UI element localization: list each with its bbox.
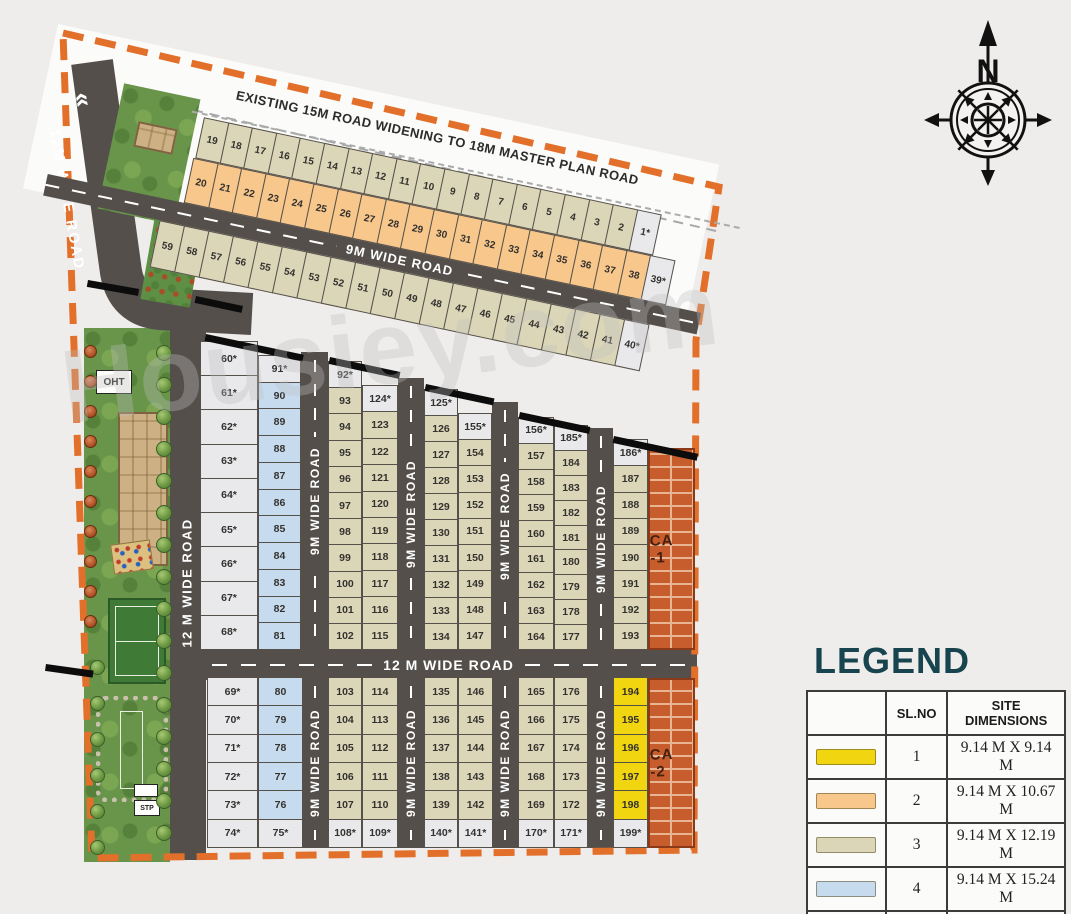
plot-126: 126 (424, 415, 458, 442)
plot-127: 127 (424, 441, 458, 468)
plot-189: 189 (613, 518, 648, 545)
tree-icon (156, 569, 172, 585)
left-vertical-road-label: 12 M WIDE ROAD (180, 508, 195, 657)
tree-icon (156, 473, 172, 489)
plot-65: 65* (200, 512, 258, 547)
plot-122: 122 (362, 438, 398, 465)
plot-80: 80 (258, 677, 303, 706)
tree-icon (156, 377, 172, 393)
middle-horizontal-road: 12 M WIDE ROAD (200, 650, 697, 680)
vertical-9m-road: 9M WIDE ROAD (492, 678, 518, 848)
plot-103: 103 (328, 677, 362, 706)
plot-124: 124* (362, 385, 398, 412)
legend-slno: 4 (886, 867, 947, 911)
legend-swatch (816, 749, 876, 765)
vertical-9m-road: 9M WIDE ROAD (588, 678, 613, 848)
plot-141: 141* (458, 819, 493, 848)
plot-166: 166 (518, 705, 554, 734)
plot-98: 98 (328, 518, 362, 545)
shrub-icon (84, 495, 97, 508)
plot-86: 86 (258, 489, 301, 517)
plot-140: 140* (424, 819, 458, 848)
plot-130: 130 (424, 519, 458, 546)
legend-swatch (816, 793, 876, 809)
plot-96: 96 (328, 466, 362, 493)
plot-90: 90 (258, 382, 301, 410)
plot-139: 139 (424, 790, 458, 819)
plot-111: 111 (362, 762, 398, 791)
legend-header-2: SITE DIMENSIONS (947, 691, 1065, 735)
legend-dimensions: 9.14 M X 10.67 M (947, 779, 1065, 823)
plot-67: 67* (200, 581, 258, 616)
vertical-9m-road-label: 9M WIDE ROAD (308, 437, 322, 565)
shrub-icon (84, 375, 97, 388)
common-area-CA-2: CA -2 (648, 678, 695, 848)
walking-track-inner (120, 711, 143, 790)
middle-road-label: 12 M WIDE ROAD (383, 657, 514, 673)
plot-132: 132 (424, 571, 458, 598)
plot-195: 195 (613, 705, 648, 734)
plot-70: 70* (207, 705, 258, 734)
plot-165: 165 (518, 677, 554, 706)
plot-143: 143 (458, 762, 493, 791)
plot-75: 75* (258, 819, 303, 848)
plot-147: 147 (458, 623, 492, 650)
plot-97: 97 (328, 492, 362, 519)
plot-151: 151 (458, 518, 492, 545)
tree-icon (156, 601, 172, 617)
plot-column: 165166167168169170* (518, 678, 554, 848)
site-plan-canvas: « 12M WIDE ROAD 12 M WIDE ROAD OHT STP E… (0, 0, 1071, 914)
plot-145: 145 (458, 705, 493, 734)
plot-66: 66* (200, 546, 258, 581)
vertical-9m-road-label: 9M WIDE ROAD (498, 462, 512, 590)
plot-161: 161 (518, 546, 554, 573)
plot-167: 167 (518, 734, 554, 763)
plot-102: 102 (328, 623, 362, 650)
plot-column: 185*184183182181180179178177 (554, 426, 588, 650)
plot-159: 159 (518, 494, 554, 521)
vertical-9m-road-label: 9M WIDE ROAD (498, 699, 512, 827)
legend-dimensions: 9.14 M X 12.19 M (947, 823, 1065, 867)
plot-149: 149 (458, 570, 492, 597)
vertical-9m-road: 9M WIDE ROAD (301, 678, 328, 848)
tree-icon (156, 409, 172, 425)
plot-column: 155*154153152151150149148147 (458, 414, 492, 650)
plot-88: 88 (258, 435, 301, 463)
legend-row: 19.14 M X 9.14 M (807, 735, 1065, 779)
plot-172: 172 (554, 790, 588, 819)
plot-135: 135 (424, 677, 458, 706)
plot-144: 144 (458, 734, 493, 763)
tree-icon (156, 665, 172, 681)
plot-62: 62* (200, 409, 258, 444)
plot-column: 91*90898887868584838281 (258, 356, 301, 650)
plot-column: 60*61*62*63*64*65*66*67*68* (200, 342, 258, 650)
legend-header-swatch (807, 691, 886, 735)
vertical-9m-road: 9M WIDE ROAD (492, 402, 518, 650)
playground (110, 539, 154, 574)
plot-184: 184 (554, 450, 588, 476)
road-centerline (212, 664, 372, 666)
plot-107: 107 (328, 790, 362, 819)
tree-icon (156, 761, 172, 777)
plot-179: 179 (554, 574, 588, 600)
common-area-CA-1: CA -1 (648, 448, 695, 650)
plot-134: 134 (424, 623, 458, 650)
compass-rose: N (922, 16, 1054, 188)
plot-106: 106 (328, 762, 362, 791)
plot-column: 194195196197198199* (613, 678, 648, 848)
shrub-icon (84, 345, 97, 358)
plot-73: 73* (207, 790, 258, 819)
plot-198: 198 (613, 790, 648, 819)
plot-152: 152 (458, 492, 492, 519)
vertical-9m-road-label: 9M WIDE ROAD (594, 475, 608, 603)
compass-icon: N (922, 16, 1054, 188)
plot-148: 148 (458, 597, 492, 624)
plot-column: 125*126127128129130131132133134 (424, 390, 458, 650)
legend-header-row: SL.NOSITE DIMENSIONS (807, 691, 1065, 735)
plot-176: 176 (554, 677, 588, 706)
plot-77: 77 (258, 762, 303, 791)
tree-icon (156, 633, 172, 649)
plot-81: 81 (258, 622, 301, 650)
plot-128: 128 (424, 467, 458, 494)
legend-header-1: SL.NO (886, 691, 947, 735)
plot-72: 72* (207, 762, 258, 791)
tree-icon (156, 537, 172, 553)
plot-68: 68* (200, 615, 258, 650)
compound-wall-bar (87, 280, 139, 296)
plot-64: 64* (200, 478, 258, 513)
plot-177: 177 (554, 624, 588, 650)
plot-85: 85 (258, 515, 301, 543)
kids-play-structure (133, 121, 178, 155)
plot-169: 169 (518, 790, 554, 819)
plot-89: 89 (258, 408, 301, 436)
tree-icon (156, 441, 172, 457)
vertical-9m-road-label: 9M WIDE ROAD (308, 699, 322, 827)
plot-168: 168 (518, 762, 554, 791)
compass-hub (974, 106, 1002, 134)
shrub-icon (84, 435, 97, 448)
plot-155: 155* (458, 413, 492, 440)
plot-column: 186*187188189190191192193 (613, 440, 648, 650)
legend-dimensions: 9.14 M X 9.14 M (947, 735, 1065, 779)
legend-swatch-cell (807, 823, 886, 867)
plot-142: 142 (458, 790, 493, 819)
plot-175: 175 (554, 705, 588, 734)
plot-196: 196 (613, 734, 648, 763)
legend-swatch (816, 881, 876, 897)
plot-133: 133 (424, 597, 458, 624)
common-area-label: CA -2 (649, 745, 693, 780)
plot-84: 84 (258, 542, 301, 570)
vertical-9m-road: 9M WIDE ROAD (398, 678, 424, 848)
plot-69: 69* (207, 677, 258, 706)
plot-118: 118 (362, 543, 398, 570)
plot-108: 108* (328, 819, 362, 848)
court-centerline (115, 641, 159, 642)
plot-137: 137 (424, 734, 458, 763)
plot-110: 110 (362, 790, 398, 819)
plot-191: 191 (613, 570, 648, 597)
plot-181: 181 (554, 525, 588, 551)
plot-109: 109* (362, 819, 398, 848)
plot-157: 157 (518, 443, 554, 470)
legend-row: 39.14 M X 12.19 M (807, 823, 1065, 867)
legend-swatch-cell (807, 735, 886, 779)
plot-158: 158 (518, 469, 554, 496)
tree-icon (156, 793, 172, 809)
legend-swatch-cell (807, 867, 886, 911)
plot-136: 136 (424, 705, 458, 734)
plot-column: 103104105106107108* (328, 678, 362, 848)
plot-197: 197 (613, 762, 648, 791)
legend-title: LEGEND (814, 640, 1066, 682)
plot-150: 150 (458, 544, 492, 571)
plot-178: 178 (554, 599, 588, 625)
plot-99: 99 (328, 544, 362, 571)
plot-113: 113 (362, 705, 398, 734)
plot-column: 146145144143142141* (458, 678, 493, 848)
plot-104: 104 (328, 705, 362, 734)
legend-table: SL.NOSITE DIMENSIONS 19.14 M X 9.14 M29.… (806, 690, 1066, 914)
legend-row: 49.14 M X 15.24 M (807, 867, 1065, 911)
plot-121: 121 (362, 464, 398, 491)
tree-icon (156, 505, 172, 521)
plot-100: 100 (328, 571, 362, 598)
plot-105: 105 (328, 734, 362, 763)
plot-164: 164 (518, 623, 554, 650)
plot-187: 187 (613, 465, 648, 492)
plot-194: 194 (613, 677, 648, 706)
plot-119: 119 (362, 517, 398, 544)
plot-146: 146 (458, 677, 493, 706)
plot-182: 182 (554, 500, 588, 526)
plot-112: 112 (362, 734, 398, 763)
vertical-9m-road: 9M WIDE ROAD (301, 352, 328, 650)
plot-180: 180 (554, 549, 588, 575)
legend-slno: 1 (886, 735, 947, 779)
tree-icon (156, 345, 172, 361)
legend-swatch (816, 837, 876, 853)
plot-162: 162 (518, 572, 554, 599)
plot-column: 69*70*71*72*73*74* (207, 678, 258, 848)
plot-114: 114 (362, 677, 398, 706)
plot-199: 199* (613, 819, 648, 848)
plot-71: 71* (207, 734, 258, 763)
shrub-icon (84, 405, 97, 418)
plot-93: 93 (328, 387, 362, 414)
plot-78: 78 (258, 734, 303, 763)
tree-icon (90, 840, 105, 855)
tree-icon (90, 732, 105, 747)
plot-column: 176175174173172171* (554, 678, 588, 848)
vertical-9m-road: 9M WIDE ROAD (588, 428, 613, 650)
shrub-icon (84, 465, 97, 478)
plot-153: 153 (458, 465, 492, 492)
plot-129: 129 (424, 493, 458, 520)
plot-116: 116 (362, 596, 398, 623)
plot-131: 131 (424, 545, 458, 572)
plot-column: 807978777675* (258, 678, 303, 848)
tree-icon (156, 729, 172, 745)
tree-icon (156, 825, 172, 841)
plot-column: 124*123122121120119118117116115 (362, 386, 398, 650)
plot-188: 188 (613, 492, 648, 519)
plot-154: 154 (458, 439, 492, 466)
legend-swatch-cell (807, 779, 886, 823)
tree-icon (90, 804, 105, 819)
plot-76: 76 (258, 790, 303, 819)
vertical-9m-road: 9M WIDE ROAD (398, 378, 424, 650)
legend-slno: 2 (886, 779, 947, 823)
tree-icon (90, 768, 105, 783)
legend-slno: 3 (886, 823, 947, 867)
plot-94: 94 (328, 413, 362, 440)
plot-120: 120 (362, 491, 398, 518)
oht-label: OHT (96, 370, 132, 394)
plot-173: 173 (554, 762, 588, 791)
plot-123: 123 (362, 411, 398, 438)
plot-79: 79 (258, 705, 303, 734)
plot-163: 163 (518, 597, 554, 624)
legend-panel: LEGEND SL.NOSITE DIMENSIONS 19.14 M X 9.… (800, 640, 1066, 914)
plot-101: 101 (328, 597, 362, 624)
utility-box (134, 784, 158, 797)
legend-row: 29.14 M X 10.67 M (807, 779, 1065, 823)
plot-183: 183 (554, 475, 588, 501)
plot-160: 160 (518, 520, 554, 547)
plot-95: 95 (328, 440, 362, 467)
plot-174: 174 (554, 734, 588, 763)
plot-63: 63* (200, 444, 258, 479)
plot-138: 138 (424, 762, 458, 791)
plot-83: 83 (258, 569, 301, 597)
tree-icon (90, 696, 105, 711)
shrub-icon (84, 555, 97, 568)
plot-171: 171* (554, 819, 588, 848)
plot-61: 61* (200, 375, 258, 410)
road-centerline (525, 664, 685, 666)
vertical-9m-road-label: 9M WIDE ROAD (594, 699, 608, 827)
plot-193: 193 (613, 623, 648, 650)
plot-117: 117 (362, 570, 398, 597)
plot-115: 115 (362, 623, 398, 650)
shrub-icon (84, 615, 97, 628)
shrub-icon (84, 585, 97, 598)
common-area-label: CA -1 (649, 531, 693, 566)
plot-192: 192 (613, 597, 648, 624)
plot-87: 87 (258, 462, 301, 490)
plot-190: 190 (613, 544, 648, 571)
vertical-9m-road-label: 9M WIDE ROAD (404, 699, 418, 827)
shrub-icon (84, 525, 97, 538)
plot-column: 135136137138139140* (424, 678, 458, 848)
plot-170: 170* (518, 819, 554, 848)
plot-column: 92*93949596979899100101102 (328, 362, 362, 650)
plot-74: 74* (207, 819, 258, 848)
tree-icon (156, 697, 172, 713)
legend-dimensions: 9.14 M X 15.24 M (947, 867, 1065, 911)
vertical-9m-road-label: 9M WIDE ROAD (404, 450, 418, 578)
plot-column: 156*157158159160161162163164 (518, 418, 554, 650)
plot-82: 82 (258, 596, 301, 624)
plot-column: 114113112111110109* (362, 678, 398, 848)
